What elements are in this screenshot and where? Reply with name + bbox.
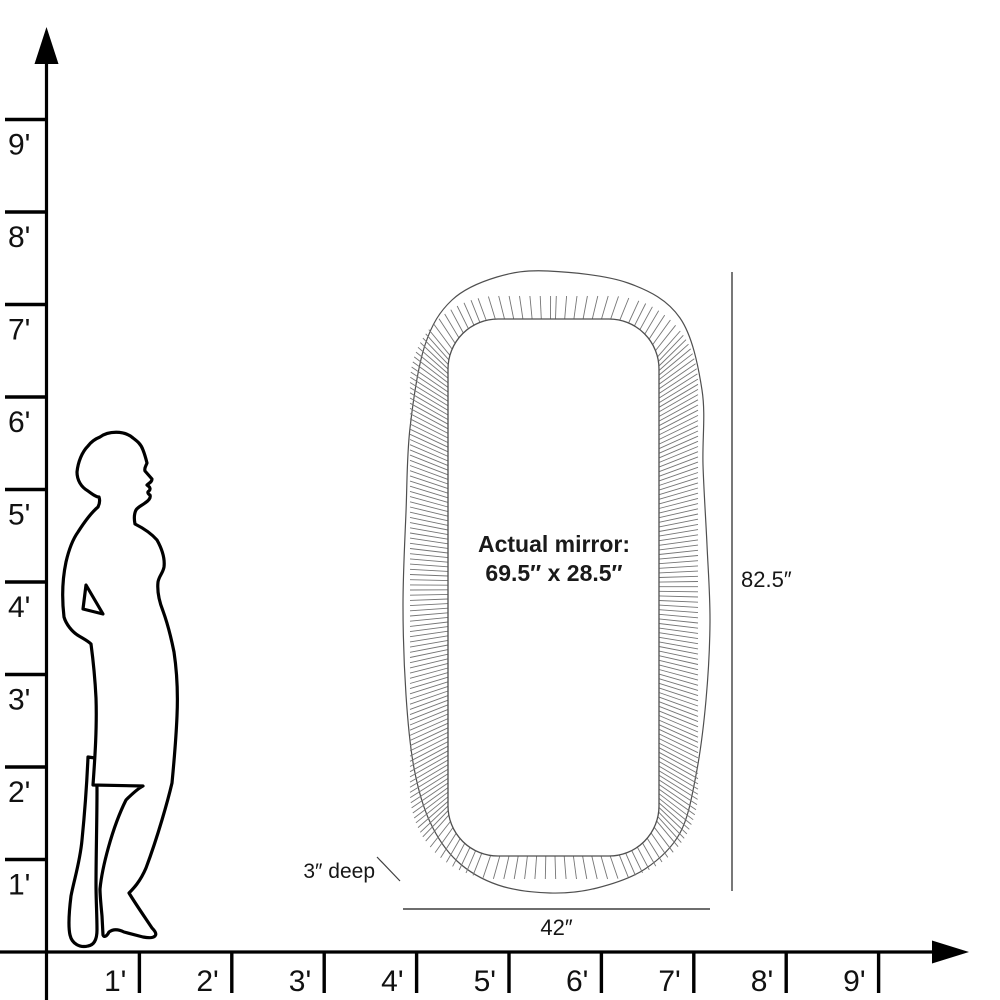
flute-line: [565, 296, 567, 319]
flute-line: [478, 298, 486, 320]
flute-line: [555, 856, 556, 879]
flute-line: [659, 509, 698, 518]
flute-line: [659, 656, 698, 665]
flute-line: [659, 369, 697, 394]
flute-line: [410, 434, 448, 452]
flute-line: [573, 856, 576, 879]
flute-line: [525, 856, 528, 879]
flute-line: [659, 780, 697, 805]
flute-line: [659, 610, 698, 613]
flute-line: [659, 789, 695, 815]
flute-line: [535, 856, 537, 879]
flute-line: [659, 514, 698, 522]
flute-line: [610, 856, 618, 879]
flute-line: [410, 424, 448, 443]
flute-line: [659, 651, 698, 659]
flute-line: [659, 364, 696, 389]
flute-line: [520, 296, 523, 319]
flute-line: [659, 725, 698, 743]
flute-line: [410, 613, 448, 616]
flute-line: [410, 769, 448, 792]
flute-line: [410, 599, 448, 600]
vertical-axis-label: 1': [8, 869, 30, 902]
flute-line: [659, 785, 696, 810]
flute-line: [410, 604, 448, 606]
flute-line: [509, 296, 514, 319]
flute-line: [647, 838, 662, 862]
vertical-axis: 1'2'3'4'5'6'7'8'9': [5, 27, 59, 1000]
flute-line: [601, 856, 608, 879]
flute-line: [659, 596, 698, 597]
flute-line: [659, 493, 698, 504]
flute-line: [659, 354, 693, 380]
flute-line: [659, 374, 697, 398]
flute-line: [659, 447, 698, 463]
height-dimension-label: 82.5″: [741, 567, 792, 593]
flute-line: [410, 486, 448, 498]
flute-line: [659, 591, 698, 592]
flute-line: [410, 617, 448, 621]
flute-line: [659, 349, 691, 375]
flute-line: [545, 856, 546, 879]
scale-diagram-page: 1'2'3'4'5'6'7'8'9' 1'2'3'4'5'6'7'8'9' Ac…: [0, 0, 1000, 1000]
flute-line: [659, 614, 698, 618]
flute-line: [592, 856, 597, 879]
flute-line: [410, 673, 448, 684]
vertical-axis-label: 3': [8, 684, 30, 717]
flute-line: [471, 300, 480, 322]
vertical-axis-label: 6': [8, 406, 30, 439]
depth-leader-line: [377, 857, 400, 881]
flute-line: [473, 853, 482, 875]
flute-line: [410, 445, 448, 461]
flute-line: [416, 352, 448, 378]
flute-line: [659, 679, 698, 691]
flute-line: [483, 856, 491, 878]
flute-line: [640, 307, 653, 330]
flute-line: [659, 421, 698, 440]
flute-line: [410, 728, 448, 746]
flute-line: [410, 419, 448, 438]
woman-silhouette: [63, 432, 178, 946]
flute-line: [659, 436, 698, 453]
flute-line: [410, 429, 448, 447]
flute-line: [488, 297, 495, 320]
flute-line: [658, 335, 683, 361]
flute-line: [658, 817, 681, 843]
flute-line: [410, 622, 448, 626]
horizontal-axis-label: 3': [289, 965, 311, 998]
flute-line: [659, 716, 698, 733]
flute-line: [659, 665, 698, 675]
flute-line: [410, 627, 448, 632]
flute-line: [410, 517, 448, 525]
horizontal-axis-label: 2': [196, 965, 218, 998]
flute-line: [445, 314, 459, 338]
vertical-axis-label: 5': [8, 499, 30, 532]
flute-line: [426, 334, 449, 360]
flute-line: [626, 853, 636, 875]
flute-line: [659, 498, 698, 508]
flute-line: [645, 311, 659, 334]
flute-line: [574, 296, 577, 319]
horizontal-axis-label: 4': [381, 965, 403, 998]
flute-line: [412, 783, 448, 808]
flute-line: [659, 504, 698, 513]
horizontal-axis-label: 9': [843, 965, 865, 998]
mirror-size-label-line2: 69.5″ x 28.5″: [403, 559, 705, 588]
flute-line: [659, 624, 698, 629]
flute-line: [659, 734, 698, 753]
flute-line: [659, 488, 698, 499]
flute-line: [410, 654, 448, 663]
flute-line: [602, 296, 609, 319]
flute-line: [410, 491, 448, 502]
horizontal-axis-label: 7': [658, 965, 680, 998]
flute-line: [659, 605, 698, 607]
flute-line: [410, 659, 448, 668]
flute-line: [410, 388, 448, 411]
flute-line: [410, 682, 448, 694]
flute-line: [466, 851, 476, 873]
flute-line: [540, 296, 541, 319]
depth-label: 3″ deep: [280, 860, 375, 884]
width-dimension-label: 42″: [403, 915, 710, 941]
flute-line: [504, 856, 509, 879]
flute-line: [414, 792, 448, 818]
vertical-axis-label: 2': [8, 776, 30, 809]
flute-line: [643, 843, 656, 866]
flute-line: [659, 798, 691, 824]
flute-line: [583, 296, 587, 319]
flute-line: [410, 737, 448, 756]
flute-line: [418, 347, 448, 373]
flute-line: [410, 719, 448, 736]
vertical-axis-label: 4': [8, 591, 30, 624]
flute-line: [410, 440, 448, 457]
vertical-axis-label: 8': [8, 221, 30, 254]
flute-line: [410, 663, 448, 673]
flute-line: [583, 856, 587, 879]
flute-line: [410, 714, 448, 730]
flute-line: [418, 801, 448, 827]
flute-line: [410, 497, 448, 507]
flute-line: [410, 377, 448, 401]
flute-line: [659, 803, 689, 829]
flute-line: [659, 379, 698, 403]
flute-line: [410, 403, 448, 424]
flute-line: [611, 296, 619, 319]
horizontal-axis-label: 8': [751, 965, 773, 998]
flute-line: [659, 619, 698, 623]
horizontal-axis-label: 5': [474, 965, 496, 998]
flute-line: [659, 426, 698, 444]
flute-line: [435, 828, 453, 853]
flute-line: [451, 310, 464, 333]
flute-line: [446, 839, 460, 863]
flute-line: [410, 677, 448, 688]
flute-line: [659, 601, 698, 603]
flute-line: [439, 319, 455, 344]
flute-line: [620, 298, 629, 320]
flute-line: [659, 794, 693, 820]
flute-line: [410, 668, 448, 678]
flute-line: [659, 359, 694, 385]
horizontal-axis-arrow: [932, 941, 969, 964]
flute-line: [410, 512, 448, 521]
flute-line: [530, 296, 532, 319]
flute-line: [653, 320, 671, 345]
flute-line: [493, 856, 499, 879]
vertical-axis-label: 9': [8, 129, 30, 162]
vertical-axis-arrow: [35, 27, 59, 64]
flute-line: [410, 383, 448, 406]
flute-line: [659, 431, 698, 449]
flute-line: [659, 720, 698, 737]
vertical-axis-label: 7': [8, 314, 30, 347]
flute-line: [659, 771, 698, 795]
flute-line: [659, 674, 698, 685]
flute-line: [410, 502, 448, 512]
scale-diagram-svg: 1'2'3'4'5'6'7'8'9' 1'2'3'4'5'6'7'8'9': [0, 0, 1000, 1000]
flute-line: [659, 441, 698, 458]
flute-line: [659, 633, 698, 639]
horizontal-axis: 1'2'3'4'5'6'7'8'9': [0, 941, 969, 999]
flute-line: [592, 296, 598, 319]
horizontal-axis-label: 6': [566, 965, 588, 998]
flute-line: [659, 660, 698, 669]
flute-line: [410, 751, 448, 772]
flute-line: [659, 766, 698, 789]
flute-line: [659, 384, 698, 407]
flute-line: [410, 507, 448, 516]
flute-line: [410, 723, 448, 740]
flute-line: [416, 797, 448, 823]
flute-line: [556, 296, 557, 319]
flute-line: [649, 315, 665, 339]
flute-line: [410, 608, 448, 611]
flute-line: [657, 821, 678, 847]
flute-line: [619, 855, 628, 877]
flute-line: [659, 483, 698, 495]
flute-line: [410, 594, 448, 595]
flute-line: [499, 296, 505, 319]
flute-line: [410, 631, 448, 637]
flute-line: [651, 833, 668, 857]
flute-line: [514, 856, 518, 879]
flute-line: [659, 775, 698, 799]
flute-line: [413, 788, 448, 813]
mirror-size-label-line1: Actual mirror:: [403, 530, 705, 559]
flute-line: [410, 732, 448, 751]
horizontal-axis-label: 1': [104, 965, 126, 998]
mirror-size-label: Actual mirror: 69.5″ x 28.5″: [403, 530, 705, 588]
flute-line: [659, 670, 698, 681]
flute-line: [659, 628, 698, 633]
flute-line: [659, 729, 698, 747]
flute-line: [564, 856, 566, 879]
